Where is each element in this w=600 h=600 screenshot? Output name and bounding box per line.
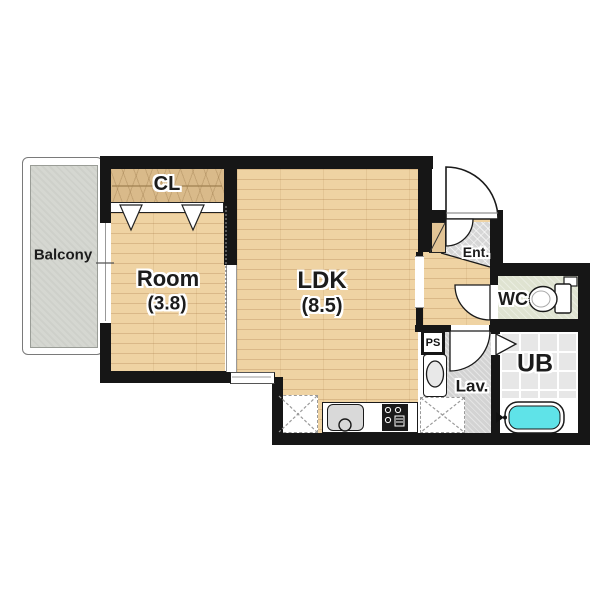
toilet-icon [529,277,577,313]
lav-basin-icon [427,361,444,387]
floor-plan: PS [0,0,600,600]
ldk-label: LDK [297,269,346,293]
shoe-cabinet-diagonal [430,223,445,252]
bath-door-icon [496,334,516,355]
lavatory-door-icon [450,331,490,371]
balcony-label: Balcony [34,248,92,263]
closet-label: CL [154,174,181,194]
entrance-inner-swing-icon [446,219,473,246]
room-size-label: (3.8) [147,295,186,314]
wc-door-icon [455,285,490,320]
wc-label: WC [498,290,528,308]
entrance-door-icon [446,167,498,219]
entrance-label: Ent. [463,245,489,259]
closet-door-triangle-left [120,205,142,230]
closet-door-triangle-right [182,205,204,230]
unit-bath-label: UB [517,352,553,377]
stove-burners-icon [385,407,404,426]
ldk-size-label: (8.5) [301,296,342,316]
lavatory-label: Lav. [456,378,489,395]
sink-drain-icon [339,419,351,431]
room-label: Room [137,268,199,290]
refrigerator-x-icon [279,396,317,432]
bathtub-icon [496,402,564,433]
washer-x-icon [421,398,464,432]
